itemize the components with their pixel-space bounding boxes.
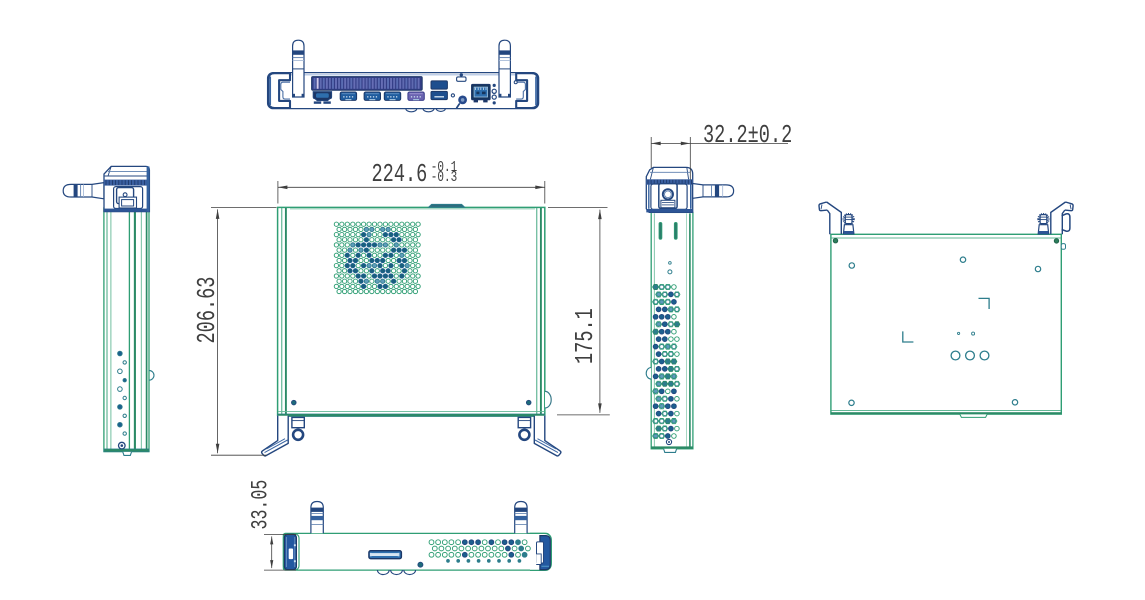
svg-text:32.2±0.2: 32.2±0.2	[703, 120, 792, 150]
svg-text:224.6: 224.6	[372, 159, 428, 189]
svg-text:33.05: 33.05	[248, 480, 274, 530]
svg-text:175.1: 175.1	[570, 308, 600, 364]
svg-text:206.63: 206.63	[192, 277, 222, 344]
svg-text:-0.3: -0.3	[431, 168, 457, 185]
